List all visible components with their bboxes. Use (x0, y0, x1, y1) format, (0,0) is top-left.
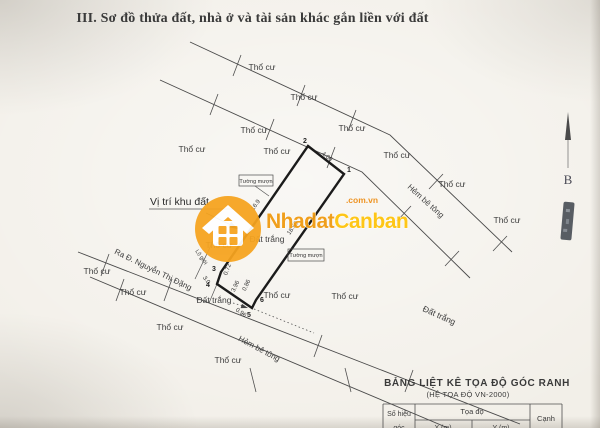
coordinate-table-subtitle: (HỆ TỌA ĐỘ VN-2000) (426, 390, 509, 399)
dimension-segment: 0.86 (242, 278, 253, 292)
plot-corner-label: 3 (212, 266, 216, 273)
land-use-label: Thổ cư (264, 290, 291, 300)
callout-leader-line (255, 186, 269, 196)
col-edge: Cạnh (537, 414, 555, 423)
col-point-id: Số hiệu (387, 409, 411, 418)
watermark-brand-first: Nhadat (266, 210, 335, 233)
parcel-tick (445, 251, 459, 266)
borrowed-wall-label: Tường mượn (289, 253, 322, 259)
land-use-label: Thổ cư (439, 179, 466, 189)
watermark-brand-second: Canban (334, 210, 408, 233)
scanned-survey-page: III. Sơ đồ thửa đất, nhà ở và tài sản kh… (0, 0, 600, 428)
plot-corner-label: 2 (303, 138, 307, 145)
watermark-window (219, 237, 227, 245)
land-use-label: Thổ cư (332, 291, 359, 301)
borrowed-wall-label: Tường mượn (239, 179, 272, 185)
watermark-window (230, 226, 238, 234)
alley-label: Hẻm bê tông (237, 334, 282, 363)
street-label: Ra Đ. Nguyễn Thị Đặng (113, 247, 193, 292)
col-coordinates: Tọa độ (460, 407, 483, 416)
location-label: Vị trí khu đất (150, 196, 209, 208)
land-use-label: Thổ cư (84, 266, 111, 276)
stamp-fleck (563, 229, 567, 232)
land-use-label: Thổ cư (179, 144, 206, 154)
land-use-label: Thổ cư (120, 287, 147, 297)
parcel-tick (210, 94, 218, 115)
north-label: B (564, 172, 573, 187)
land-use-label: Thổ cư (339, 123, 366, 133)
parcel-tick (314, 335, 322, 357)
land-use-label: Thổ cư (215, 355, 242, 365)
land-use-label: Thổ cư (384, 150, 411, 160)
coordinate-table: Số hiệu góc Tọa độ X (m) Y (m) Cạnh (383, 404, 562, 428)
stamp-bar (560, 202, 574, 241)
land-use-label: Thổ cư (249, 62, 276, 72)
watermark-window (230, 237, 238, 245)
dimension-segment: 3.96 (231, 279, 242, 293)
coordinate-table-title: BẢNG LIỆT KÊ TỌA ĐỘ GÓC RANH (384, 376, 570, 389)
plot-corner-label: 1 (347, 167, 351, 174)
vacant-land-label: Đất trắng (197, 295, 232, 305)
parcel-tick (493, 236, 507, 251)
vacant-land-label: Đất trắng (421, 304, 457, 327)
land-use-label: Thổ cư (157, 322, 184, 332)
land-use-label: Thổ cư (264, 146, 291, 156)
road-boundary-dotted-line (254, 309, 314, 333)
parcel-tick (250, 368, 256, 392)
land-use-label: Thổ cư (291, 92, 318, 102)
watermark-logo: .com.vn NhadatCanban (195, 195, 408, 262)
plot-corner-label: 5 (247, 312, 251, 319)
stamp-fleck (566, 209, 570, 212)
watermark-window (219, 226, 227, 234)
north-arrow-icon (565, 112, 571, 140)
watermark-domain: .com.vn (346, 195, 378, 205)
land-use-label: Thổ cư (494, 215, 521, 225)
land-use-label: Thổ cư (241, 125, 268, 135)
survey-map: 2 1 3 4 5 6 4.00 18.50 16.9 0.72 3.96 0.… (0, 0, 600, 428)
stamp-fleck (566, 219, 569, 224)
parcel-tick (345, 368, 351, 392)
watermark-brand: NhadatCanban (266, 210, 408, 233)
